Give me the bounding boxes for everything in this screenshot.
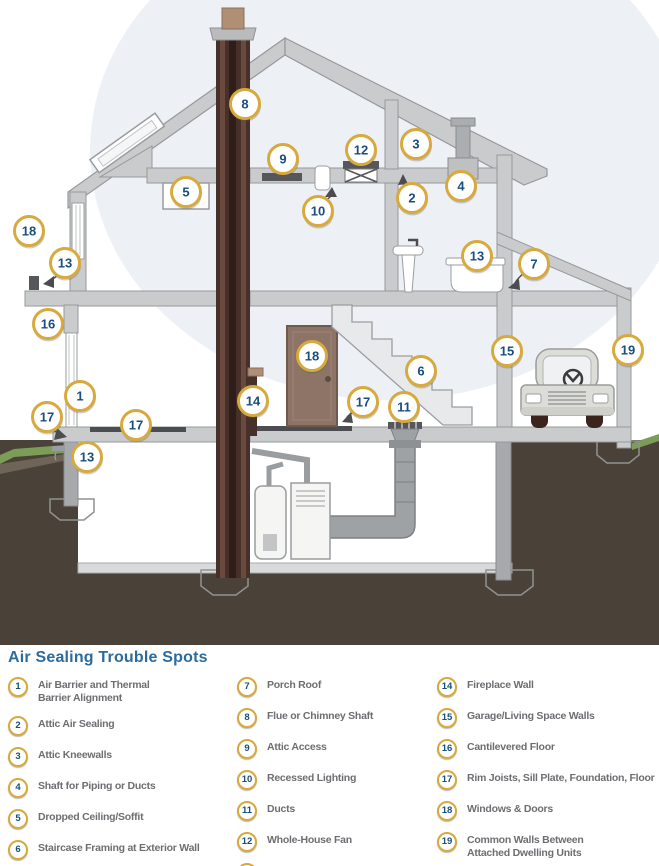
legend-item: 6Staircase Framing at Exterior Wall bbox=[8, 840, 237, 860]
marker-19-14: 19 bbox=[613, 336, 644, 368]
svg-text:6: 6 bbox=[417, 364, 424, 379]
legend-item-number: 7 bbox=[237, 677, 257, 697]
legend-item: 3Attic Kneewalls bbox=[8, 747, 237, 767]
svg-text:18: 18 bbox=[305, 349, 319, 364]
foundation-wall-right bbox=[496, 440, 511, 580]
cantilevered-floor bbox=[25, 291, 217, 306]
legend-item-label: Rim Joists, Sill Plate, Foundation, Floo… bbox=[457, 772, 655, 785]
marker-9-1: 9 bbox=[268, 145, 299, 177]
legend-item-number: 14 bbox=[437, 677, 457, 697]
legend-item-number: 16 bbox=[437, 739, 457, 759]
svg-text:19: 19 bbox=[621, 343, 635, 358]
basement-slab bbox=[78, 563, 512, 573]
marker-10-7: 10 bbox=[303, 197, 334, 229]
door-knob bbox=[325, 376, 331, 382]
svg-text:13: 13 bbox=[80, 450, 94, 465]
marker-15-13: 15 bbox=[492, 337, 523, 369]
wall-vent-penetration bbox=[29, 276, 39, 290]
house-diagram: 891232451018131371615191861141717171113 bbox=[0, 0, 659, 648]
legend-item-label: Shaft for Piping or Ducts bbox=[28, 780, 155, 793]
legend-item-label: Cantilevered Floor bbox=[457, 741, 555, 754]
legend-item: 16Cantilevered Floor bbox=[437, 739, 659, 759]
marker-13-9: 13 bbox=[50, 249, 81, 281]
legend-item-number: 11 bbox=[237, 801, 257, 821]
legend-item-label: Recessed Lighting bbox=[257, 772, 356, 785]
legend-item-label: Air Barrier and Thermal Barrier Alignmen… bbox=[28, 679, 150, 705]
svg-text:7: 7 bbox=[530, 257, 537, 272]
legend-item-number: 6 bbox=[8, 840, 28, 860]
legend-item-label: Porch Roof bbox=[257, 679, 321, 692]
marker-4-5: 4 bbox=[446, 172, 477, 204]
svg-text:13: 13 bbox=[58, 256, 72, 271]
marker-13-10: 13 bbox=[462, 242, 493, 274]
legend-item: 17Rim Joists, Sill Plate, Foundation, Fl… bbox=[437, 770, 659, 790]
marker-7-11: 7 bbox=[519, 250, 550, 282]
legend-item: 18Windows & Doors bbox=[437, 801, 659, 821]
legend-item: 19Common Walls Between Attached Dwelling… bbox=[437, 832, 659, 860]
svg-text:2: 2 bbox=[408, 191, 415, 206]
legend-item-number: 1 bbox=[8, 677, 28, 697]
legend-item: 5Dropped Ceiling/Soffit bbox=[8, 809, 237, 829]
legend-item: 9Attic Access bbox=[237, 739, 437, 759]
legend-item: 8Flue or Chimney Shaft bbox=[237, 708, 437, 728]
legend-item-label: Windows & Doors bbox=[457, 803, 553, 816]
svg-text:12: 12 bbox=[354, 143, 368, 158]
legend-item-number: 4 bbox=[8, 778, 28, 798]
attic-kneewall bbox=[385, 100, 398, 169]
recessed-light bbox=[315, 166, 330, 190]
legend-item: 12Whole-House Fan bbox=[237, 832, 437, 852]
marker-16-12: 16 bbox=[33, 310, 64, 342]
car-headlight-right bbox=[593, 394, 608, 403]
svg-text:17: 17 bbox=[356, 395, 370, 410]
legend-item-label: Attic Kneewalls bbox=[28, 749, 112, 762]
legend-item-label: Flue or Chimney Shaft bbox=[257, 710, 373, 723]
marker-17-21: 17 bbox=[348, 388, 379, 420]
svg-text:17: 17 bbox=[40, 410, 54, 425]
legend-item: 14Fireplace Wall bbox=[437, 677, 659, 697]
svg-text:15: 15 bbox=[500, 344, 514, 359]
legend-column-2: 7Porch Roof8Flue or Chimney Shaft9Attic … bbox=[237, 677, 437, 866]
svg-text:14: 14 bbox=[246, 394, 261, 409]
house-cross-section: 891232451018131371615191861141717171113 bbox=[0, 0, 659, 648]
car-headlight-left bbox=[526, 394, 541, 403]
marker-6-16: 6 bbox=[406, 357, 437, 389]
legend-item-label: Ducts bbox=[257, 803, 295, 816]
marker-8-0: 8 bbox=[230, 90, 261, 122]
chimney-top-brick bbox=[222, 8, 244, 29]
legend-item-number: 19 bbox=[437, 832, 457, 852]
marker-17-19: 17 bbox=[32, 403, 63, 435]
marker-14-18: 14 bbox=[238, 387, 269, 419]
legend-item-number: 5 bbox=[8, 809, 28, 829]
marker-13-23: 13 bbox=[72, 443, 103, 475]
svg-text:8: 8 bbox=[241, 97, 248, 112]
legend-item-number: 12 bbox=[237, 832, 257, 852]
legend-item-number: 18 bbox=[437, 801, 457, 821]
legend-item-label: Dropped Ceiling/Soffit bbox=[28, 811, 143, 824]
marker-18-15: 18 bbox=[297, 342, 328, 374]
marker-1-17: 1 bbox=[65, 382, 96, 414]
common-wall-right bbox=[617, 288, 631, 448]
marker-2-4: 2 bbox=[397, 184, 428, 216]
legend-item-number: 8 bbox=[237, 708, 257, 728]
svg-text:4: 4 bbox=[457, 179, 465, 194]
legend-item: 10Recessed Lighting bbox=[237, 770, 437, 790]
legend-title: Air Sealing Trouble Spots bbox=[8, 649, 659, 667]
legend-item-number: 15 bbox=[437, 708, 457, 728]
marker-18-8: 18 bbox=[14, 217, 45, 249]
svg-text:10: 10 bbox=[311, 204, 325, 219]
legend-columns: 1Air Barrier and Thermal Barrier Alignme… bbox=[8, 677, 659, 866]
water-heater bbox=[255, 486, 286, 559]
svg-text:5: 5 bbox=[182, 185, 189, 200]
legend-item: 1Air Barrier and Thermal Barrier Alignme… bbox=[8, 677, 237, 705]
window-first-story bbox=[66, 333, 77, 427]
svg-text:16: 16 bbox=[41, 317, 55, 332]
legend-item-number: 3 bbox=[8, 747, 28, 767]
second-floor bbox=[25, 291, 631, 306]
legend-column-1: 1Air Barrier and Thermal Barrier Alignme… bbox=[8, 677, 237, 866]
legend-item-number: 2 bbox=[8, 716, 28, 736]
marker-12-2: 12 bbox=[346, 136, 377, 168]
legend-item-label: Common Walls Between Attached Dwelling U… bbox=[457, 834, 584, 860]
svg-text:18: 18 bbox=[22, 224, 36, 239]
legend-item-label: Fireplace Wall bbox=[457, 679, 534, 692]
svg-text:3: 3 bbox=[412, 137, 419, 152]
garage-living-wall bbox=[497, 155, 512, 440]
svg-text:13: 13 bbox=[470, 249, 484, 264]
legend-item: 2Attic Air Sealing bbox=[8, 716, 237, 736]
legend-item-label: Attic Air Sealing bbox=[28, 718, 114, 731]
legend: Air Sealing Trouble Spots 1Air Barrier a… bbox=[0, 649, 659, 866]
car-bumper bbox=[521, 407, 614, 415]
legend-column-3: 14Fireplace Wall15Garage/Living Space Wa… bbox=[437, 677, 659, 866]
legend-item: 15Garage/Living Space Walls bbox=[437, 708, 659, 728]
interior-wall-second-story bbox=[385, 183, 398, 292]
legend-item-label: Staircase Framing at Exterior Wall bbox=[28, 842, 200, 855]
sink-basin bbox=[393, 246, 423, 255]
marker-5-6: 5 bbox=[171, 178, 202, 210]
svg-text:17: 17 bbox=[129, 418, 143, 433]
chimney-crown bbox=[210, 28, 256, 40]
legend-item: 4Shaft for Piping or Ducts bbox=[8, 778, 237, 798]
air-sealing-infographic: 891232451018131371615191861141717171113 … bbox=[0, 0, 659, 866]
furnace bbox=[291, 483, 330, 559]
legend-item: 7Porch Roof bbox=[237, 677, 437, 697]
marker-17-20: 17 bbox=[121, 411, 152, 443]
legend-item-label: Whole-House Fan bbox=[257, 834, 352, 847]
legend-item: 11Ducts bbox=[237, 801, 437, 821]
marker-3-3: 3 bbox=[401, 130, 432, 162]
legend-item-label: Garage/Living Space Walls bbox=[457, 710, 595, 723]
legend-item-number: 10 bbox=[237, 770, 257, 790]
legend-item-number: 17 bbox=[437, 770, 457, 790]
svg-text:1: 1 bbox=[76, 389, 83, 404]
legend-item-number: 9 bbox=[237, 739, 257, 759]
svg-text:9: 9 bbox=[279, 152, 286, 167]
marker-11-22: 11 bbox=[389, 393, 420, 425]
legend-item-label: Attic Access bbox=[257, 741, 327, 754]
svg-text:11: 11 bbox=[397, 400, 411, 415]
